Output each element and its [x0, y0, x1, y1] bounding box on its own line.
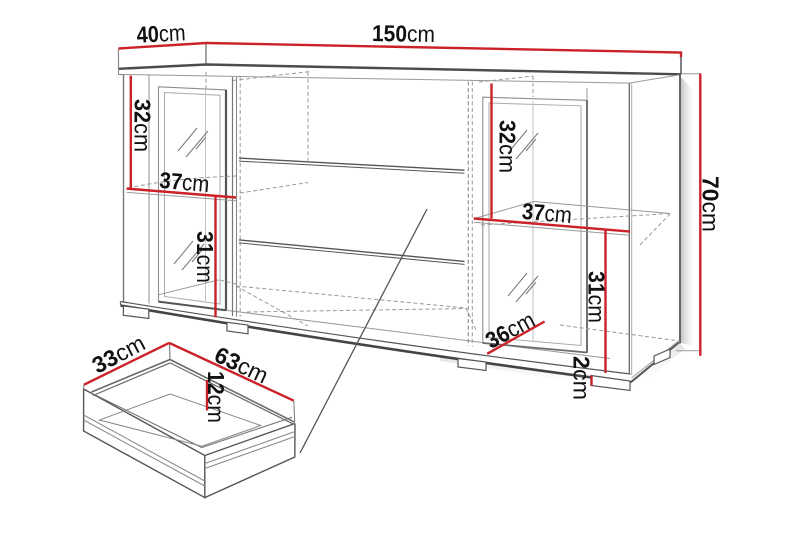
svg-text:37cm: 37cm: [521, 198, 573, 228]
svg-text:12cm: 12cm: [203, 371, 229, 423]
svg-text:150cm: 150cm: [372, 20, 435, 47]
svg-text:37cm: 37cm: [158, 167, 210, 197]
svg-text:40cm: 40cm: [136, 19, 186, 48]
svg-text:32cm: 32cm: [130, 99, 156, 152]
svg-text:70cm: 70cm: [698, 176, 724, 232]
svg-text:2cm: 2cm: [569, 356, 595, 400]
svg-text:32cm: 32cm: [495, 120, 521, 173]
svg-text:31cm: 31cm: [584, 271, 610, 323]
svg-text:31cm: 31cm: [192, 231, 218, 283]
